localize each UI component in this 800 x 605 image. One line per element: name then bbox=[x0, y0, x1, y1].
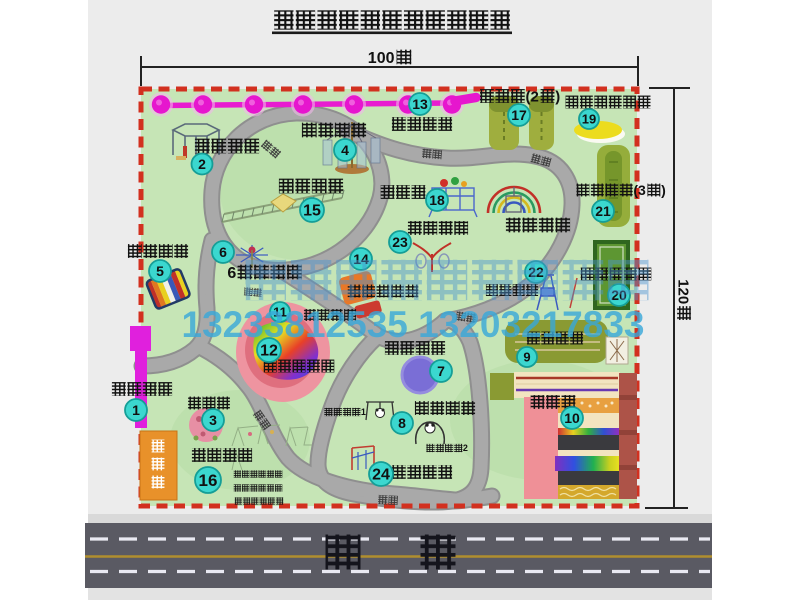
svg-text:5: 5 bbox=[156, 263, 164, 279]
svg-text:10: 10 bbox=[564, 410, 580, 426]
svg-text:12: 12 bbox=[260, 343, 278, 360]
svg-text:13: 13 bbox=[412, 96, 428, 112]
svg-text:): ) bbox=[661, 182, 666, 198]
svg-text:23: 23 bbox=[392, 234, 408, 250]
svg-text:6: 6 bbox=[227, 265, 236, 282]
svg-text:17: 17 bbox=[511, 107, 527, 123]
svg-text:9: 9 bbox=[523, 350, 530, 365]
svg-text:15: 15 bbox=[303, 203, 321, 220]
svg-text:1: 1 bbox=[361, 407, 366, 417]
svg-text:(3: (3 bbox=[633, 182, 646, 198]
svg-text:8: 8 bbox=[398, 415, 406, 431]
svg-text:16: 16 bbox=[199, 471, 218, 490]
svg-text:13233812535 13203217833: 13233812535 13203217833 bbox=[182, 304, 645, 345]
svg-text:24: 24 bbox=[372, 467, 390, 484]
svg-text:6: 6 bbox=[219, 244, 227, 260]
svg-text:2: 2 bbox=[198, 156, 206, 172]
svg-text:4: 4 bbox=[341, 142, 349, 158]
svg-text:120: 120 bbox=[675, 279, 692, 304]
svg-text:21: 21 bbox=[595, 203, 611, 219]
svg-text:): ) bbox=[555, 88, 560, 105]
svg-text:1: 1 bbox=[132, 402, 140, 418]
svg-text:100: 100 bbox=[368, 50, 395, 67]
svg-text:18: 18 bbox=[429, 192, 445, 208]
svg-text:(2: (2 bbox=[526, 88, 539, 105]
svg-text:7: 7 bbox=[437, 363, 445, 379]
svg-text:2: 2 bbox=[463, 443, 468, 453]
svg-text:19: 19 bbox=[582, 112, 596, 127]
svg-text:3: 3 bbox=[209, 412, 217, 428]
